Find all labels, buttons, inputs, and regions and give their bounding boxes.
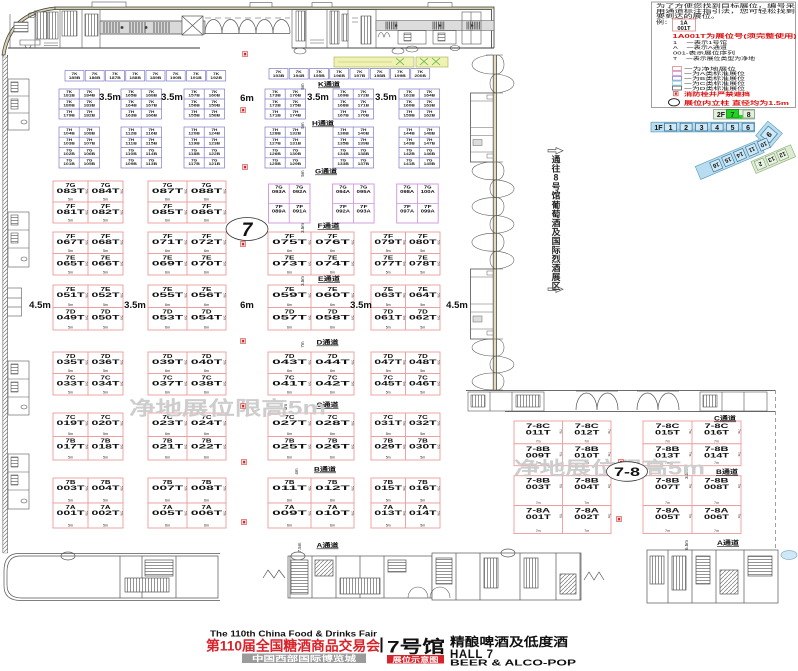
svg-text:7m: 7m (607, 452, 611, 457)
svg-text:5m: 5m (223, 240, 227, 245)
svg-text:016T: 016T (409, 486, 437, 492)
svg-text:5m: 5m (184, 316, 188, 321)
svg-text:128B: 128B (269, 131, 281, 135)
svg-text:5m: 5m (437, 445, 441, 450)
svg-text:7m: 7m (536, 439, 541, 443)
svg-text:7m: 7m (536, 529, 541, 533)
svg-text:A 一表示A通道: A 一表示A通道 (673, 44, 727, 51)
svg-text:013T: 013T (374, 511, 402, 517)
svg-text:5m: 5m (351, 421, 355, 426)
svg-text:072T: 072T (191, 240, 223, 246)
svg-text:H通道: H通道 (312, 120, 334, 128)
svg-text:5m: 5m (420, 249, 425, 253)
svg-text:015T: 015T (374, 486, 402, 492)
svg-text:6m: 6m (165, 219, 170, 223)
svg-text:170B: 170B (358, 113, 370, 117)
svg-text:5m: 5m (120, 382, 124, 387)
svg-text:5m: 5m (437, 293, 441, 298)
svg-text:5m: 5m (351, 486, 355, 491)
svg-text:5m: 5m (120, 360, 124, 365)
svg-text:6m: 6m (165, 271, 170, 275)
svg-text:6m: 6m (240, 93, 254, 104)
svg-text:F通道: F通道 (318, 222, 340, 230)
svg-text:5m: 5m (437, 382, 441, 387)
svg-text:5m: 5m (223, 360, 227, 365)
svg-text:042T: 042T (315, 382, 350, 388)
svg-text:004T: 004T (574, 484, 599, 491)
svg-text:010T: 010T (315, 511, 350, 517)
svg-text:5m: 5m (437, 262, 441, 267)
svg-text:6m: 6m (330, 499, 335, 503)
svg-text:174B: 174B (290, 113, 302, 117)
svg-text:5m: 5m (386, 391, 391, 395)
svg-text:048T: 048T (409, 360, 437, 366)
svg-text:5m: 5m (103, 219, 108, 223)
svg-text:5m: 5m (184, 240, 188, 245)
svg-text:107B: 107B (84, 142, 96, 146)
svg-text:5m: 5m (223, 445, 227, 450)
svg-text:5m: 5m (85, 421, 89, 426)
svg-text:5m: 5m (351, 316, 355, 321)
svg-text:131B: 131B (290, 142, 302, 146)
svg-text:5m: 5m (386, 303, 391, 307)
svg-text:006T: 006T (191, 511, 223, 517)
svg-text:5m: 5m (68, 303, 73, 307)
svg-text:6m: 6m (204, 369, 209, 373)
svg-text:088T: 088T (191, 189, 223, 195)
svg-text:5m: 5m (184, 262, 188, 267)
svg-text:125B: 125B (269, 162, 281, 166)
svg-text:5m: 5m (103, 271, 108, 275)
svg-text:168B: 168B (146, 93, 158, 97)
svg-text:100A: 100A (421, 189, 435, 194)
svg-text:5m: 5m (223, 189, 227, 194)
svg-text:186B: 186B (89, 76, 101, 80)
svg-text:089A: 089A (272, 209, 286, 214)
svg-text:073T: 073T (272, 262, 307, 268)
svg-text:5m: 5m (386, 271, 391, 275)
svg-text:6m: 6m (330, 456, 335, 460)
svg-text:6m: 6m (204, 499, 209, 503)
svg-text:5m: 5m (308, 445, 312, 450)
svg-text:054T: 054T (191, 316, 223, 322)
svg-text:6m: 6m (204, 432, 209, 436)
svg-text:5m: 5m (402, 445, 406, 450)
svg-text:5m: 5m (420, 432, 425, 436)
svg-text:119B: 119B (188, 142, 200, 146)
svg-text:050T: 050T (92, 316, 121, 322)
svg-text:5m: 5m (120, 240, 124, 245)
svg-text:064T: 064T (409, 293, 437, 299)
svg-text:014T: 014T (409, 511, 437, 517)
svg-text:185B: 185B (69, 76, 81, 80)
svg-text:例：: 例： (656, 18, 672, 26)
svg-text:109B: 109B (125, 162, 137, 166)
svg-text:5m: 5m (85, 262, 89, 267)
svg-text:5m: 5m (120, 293, 124, 298)
svg-text:188B: 188B (129, 76, 141, 80)
svg-text:008T: 008T (191, 486, 223, 492)
svg-text:5m: 5m (402, 316, 406, 321)
svg-text:5m: 5m (420, 303, 425, 307)
svg-text:087T: 087T (152, 189, 184, 195)
svg-text:189B: 189B (150, 76, 162, 80)
svg-text:4.5m: 4.5m (29, 300, 51, 311)
svg-text:105B: 105B (84, 162, 96, 166)
svg-text:130B: 130B (290, 152, 302, 156)
svg-text:025T: 025T (272, 445, 307, 451)
svg-text:5m: 5m (68, 219, 73, 223)
svg-text:7.5m: 7.5m (297, 542, 302, 552)
svg-text:193B: 193B (273, 74, 285, 78)
svg-text:040T: 040T (191, 360, 223, 366)
svg-text:164B: 164B (424, 93, 436, 97)
svg-text:5m: 5m (386, 432, 391, 436)
svg-text:063T: 063T (374, 293, 402, 299)
svg-text:第110届全国糖酒商品交易会: 第110届全国糖酒商品交易会 (206, 638, 381, 654)
svg-text:7m: 7m (688, 514, 692, 519)
svg-text:196B: 196B (333, 74, 345, 78)
svg-text:045T: 045T (374, 382, 402, 388)
svg-text:012T: 012T (315, 486, 350, 492)
svg-text:7m: 7m (714, 501, 719, 505)
svg-text:180B: 180B (63, 103, 75, 107)
svg-text:5m: 5m (386, 456, 391, 460)
svg-text:191B: 191B (190, 76, 202, 80)
svg-text:6m: 6m (287, 391, 292, 395)
svg-text:080T: 080T (409, 240, 437, 246)
svg-text:135B: 135B (337, 142, 349, 146)
svg-text:028T: 028T (315, 421, 350, 427)
svg-text:5m: 5m (85, 316, 89, 321)
svg-text:074T: 074T (315, 262, 350, 268)
svg-text:047T: 047T (374, 360, 402, 366)
svg-text:5m: 5m (223, 262, 227, 267)
svg-text:012T: 012T (574, 430, 599, 437)
svg-text:165B: 165B (125, 93, 137, 97)
svg-text:015T: 015T (655, 430, 680, 437)
svg-text:D通道: D通道 (317, 339, 339, 347)
svg-text:009T: 009T (272, 511, 307, 517)
svg-text:034T: 034T (92, 382, 121, 388)
svg-text:5m: 5m (437, 486, 441, 491)
svg-text:5m: 5m (351, 445, 355, 450)
svg-text:5m: 5m (103, 456, 108, 460)
svg-text:116B: 116B (146, 131, 158, 135)
svg-text:101B: 101B (63, 162, 75, 166)
svg-text:5m: 5m (85, 360, 89, 365)
svg-text:5m: 5m (420, 369, 425, 373)
svg-text:6m: 6m (330, 271, 335, 275)
svg-text:007T: 007T (655, 484, 680, 491)
svg-text:001T: 001T (677, 26, 691, 32)
svg-text:003T: 003T (57, 486, 86, 492)
svg-text:017T: 017T (57, 445, 86, 451)
svg-text:061T: 061T (374, 316, 402, 322)
svg-text:082T: 082T (92, 210, 121, 216)
svg-text:023T: 023T (152, 421, 184, 427)
svg-text:187B: 187B (109, 76, 121, 80)
svg-text:6m: 6m (165, 456, 170, 460)
svg-text:5m: 5m (68, 524, 73, 528)
svg-text:052T: 052T (92, 293, 121, 299)
svg-text:6m: 6m (240, 300, 254, 311)
svg-text:168B: 168B (337, 103, 349, 107)
svg-text:060T: 060T (315, 293, 350, 299)
svg-text:7m: 7m (607, 484, 611, 489)
svg-text:098A: 098A (400, 189, 414, 194)
svg-text:049T: 049T (57, 316, 86, 322)
svg-text:7m: 7m (536, 501, 541, 505)
svg-text:6m: 6m (287, 369, 292, 373)
svg-text:3.5m: 3.5m (99, 92, 121, 103)
svg-text:6m: 6m (165, 303, 170, 307)
svg-text:021T: 021T (152, 445, 184, 451)
svg-text:114B: 114B (146, 152, 158, 156)
svg-text:075T: 075T (272, 240, 307, 246)
svg-text:5m: 5m (437, 316, 441, 321)
svg-text:003T: 003T (526, 484, 551, 491)
svg-text:6m: 6m (165, 524, 170, 528)
svg-text:001T: 001T (57, 511, 86, 517)
svg-text:011T: 011T (272, 486, 307, 492)
svg-text:6m: 6m (204, 249, 209, 253)
svg-text:5m: 5m (103, 499, 108, 503)
svg-text:6m: 6m (204, 456, 209, 460)
svg-text:5m: 5m (308, 240, 312, 245)
svg-text:136B: 136B (337, 131, 349, 135)
svg-text:118B: 118B (188, 152, 200, 156)
svg-text:084T: 084T (92, 189, 121, 195)
svg-text:183B: 183B (84, 103, 96, 107)
svg-text:5m: 5m (308, 262, 312, 267)
svg-text:176B: 176B (290, 93, 302, 97)
svg-text:126B: 126B (269, 152, 281, 156)
svg-text:001T: 001T (526, 514, 551, 521)
svg-text:169B: 169B (337, 93, 349, 97)
svg-text:024T: 024T (191, 421, 223, 427)
svg-text:5m: 5m (402, 511, 406, 516)
svg-text:199B: 199B (394, 74, 406, 78)
svg-text:6m: 6m (287, 271, 292, 275)
svg-text:3.5m: 3.5m (161, 92, 183, 103)
svg-text:156B: 156B (188, 103, 200, 107)
svg-text:中国西部国际博览城: 中国西部国际博览城 (252, 653, 357, 663)
svg-text:142B: 142B (403, 152, 415, 156)
svg-text:112B: 112B (125, 131, 137, 135)
svg-text:5m: 5m (402, 360, 406, 365)
svg-text:085T: 085T (152, 210, 184, 216)
svg-text:6m: 6m (204, 391, 209, 395)
svg-text:022T: 022T (191, 445, 223, 451)
svg-text:G通道: G通道 (315, 168, 337, 176)
svg-text:6m: 6m (330, 326, 335, 330)
svg-text:094A: 094A (336, 189, 350, 194)
svg-text:3.5m: 3.5m (300, 276, 305, 286)
svg-text:5m: 5m (120, 316, 124, 321)
svg-text:A通道: A通道 (717, 539, 739, 547)
svg-text:3.5m: 3.5m (307, 92, 329, 103)
svg-text:057T: 057T (272, 316, 307, 322)
svg-text:5m: 5m (223, 486, 227, 491)
svg-text:108B: 108B (84, 131, 96, 135)
svg-text:7-8: 7-8 (614, 465, 640, 479)
svg-text:016T: 016T (704, 430, 729, 437)
svg-text:147B: 147B (424, 142, 436, 146)
svg-text:044T: 044T (315, 360, 350, 366)
svg-text:5m: 5m (308, 316, 312, 321)
svg-text:026T: 026T (315, 445, 350, 451)
svg-text:195B: 195B (313, 74, 325, 78)
svg-text:4m: 4m (294, 468, 299, 474)
svg-text:5m: 5m (184, 210, 188, 215)
svg-text:6m: 6m (204, 303, 209, 307)
svg-text:5m: 5m (351, 262, 355, 267)
svg-text:7m: 7m (584, 529, 589, 533)
svg-text:5m: 5m (351, 511, 355, 516)
svg-text:127B: 127B (269, 142, 281, 146)
svg-text:122B: 122B (209, 152, 221, 156)
svg-text:079T: 079T (374, 240, 402, 246)
svg-text:T 一表示展位类型为净地: T 一表示展位类型为净地 (673, 55, 755, 62)
svg-text:6m: 6m (165, 432, 170, 436)
svg-text:144B: 144B (403, 131, 415, 135)
svg-text:5m: 5m (103, 249, 108, 253)
svg-text:5m: 5m (420, 326, 425, 330)
svg-text:104B: 104B (63, 131, 75, 135)
svg-text:5m: 5m (103, 326, 108, 330)
svg-text:5m: 5m (308, 382, 312, 387)
svg-text:5m: 5m (68, 369, 73, 373)
svg-text:146B: 146B (424, 152, 436, 156)
svg-text:6m: 6m (165, 326, 170, 330)
svg-text:6m: 6m (330, 303, 335, 307)
svg-text:031T: 031T (374, 421, 402, 427)
svg-text:078T: 078T (409, 262, 437, 268)
svg-text:6m: 6m (287, 326, 292, 330)
svg-text:精酿啤酒及低度酒: 精酿啤酒及低度酒 (450, 634, 568, 649)
svg-text:7m: 7m (665, 529, 670, 533)
svg-text:5m: 5m (85, 240, 89, 245)
svg-text:002T: 002T (92, 511, 121, 517)
svg-text:111B: 111B (125, 142, 137, 146)
svg-text:6m: 6m (204, 326, 209, 330)
svg-text:5m: 5m (386, 499, 391, 503)
svg-text:7m: 7m (584, 501, 589, 505)
svg-text:6m: 6m (330, 432, 335, 436)
svg-text:5m: 5m (402, 382, 406, 387)
svg-text:029T: 029T (374, 445, 402, 451)
svg-text:7m: 7m (714, 461, 719, 465)
svg-text:092A: 092A (293, 189, 307, 194)
svg-text:039T: 039T (152, 360, 184, 366)
svg-text:155B: 155B (188, 113, 200, 117)
svg-text:5m: 5m (437, 421, 441, 426)
svg-text:157B: 157B (188, 93, 200, 97)
svg-text:5m: 5m (437, 511, 441, 516)
svg-text:3.5m: 3.5m (350, 300, 372, 311)
svg-text:5m: 5m (437, 240, 441, 245)
svg-text:5m: 5m (184, 486, 188, 491)
svg-text:5m: 5m (308, 360, 312, 365)
svg-text:8: 8 (747, 112, 751, 119)
svg-text:5m: 5m (184, 189, 188, 194)
svg-text:BEER & ALCO-POP: BEER & ALCO-POP (450, 658, 577, 667)
svg-text:5m: 5m (402, 262, 406, 267)
svg-text:5m: 5m (308, 293, 312, 298)
svg-text:5m: 5m (85, 511, 89, 516)
svg-text:2: 2 (684, 125, 688, 132)
svg-text:6m: 6m (165, 369, 170, 373)
svg-text:103B: 103B (63, 142, 75, 146)
svg-text:148B: 148B (424, 131, 436, 135)
svg-text:070T: 070T (191, 262, 223, 268)
svg-text:6m: 6m (204, 198, 209, 202)
svg-text:069T: 069T (152, 262, 184, 268)
svg-text:5m: 5m (85, 445, 89, 450)
svg-text:7m: 7m (665, 501, 670, 505)
svg-text:077T: 077T (374, 262, 402, 268)
svg-text:K通道: K通道 (318, 81, 340, 89)
svg-text:7m: 7m (714, 439, 719, 443)
svg-text:5m: 5m (223, 421, 227, 426)
svg-text:5m: 5m (308, 486, 312, 491)
svg-text:展位示意图: 展位示意图 (393, 655, 439, 664)
svg-text:068T: 068T (92, 240, 121, 246)
svg-text:3.5m: 3.5m (300, 223, 305, 233)
svg-text:5m: 5m (85, 293, 89, 298)
svg-text:5m: 5m (120, 486, 124, 491)
svg-text:7m: 7m (559, 452, 563, 457)
svg-text:7m: 7m (559, 514, 563, 519)
svg-text:5m: 5m (386, 249, 391, 253)
svg-text:5m: 5m (85, 210, 89, 215)
svg-text:141B: 141B (403, 162, 415, 166)
svg-text:167B: 167B (146, 103, 158, 107)
svg-text:113B: 113B (146, 162, 158, 166)
svg-text:056T: 056T (191, 293, 223, 299)
svg-text:6m: 6m (330, 249, 335, 253)
svg-text:095A: 095A (357, 189, 371, 194)
svg-text:5m: 5m (120, 210, 124, 215)
svg-text:6m: 6m (165, 391, 170, 395)
svg-text:7: 7 (242, 220, 254, 241)
svg-text:123B: 123B (209, 142, 221, 146)
svg-text:6m: 6m (330, 524, 335, 528)
svg-text:1 一表示1号馆: 1 一表示1号馆 (673, 39, 727, 46)
svg-text:001-表示展位序列: 001-表示展位序列 (673, 50, 735, 57)
svg-text:5m: 5m (120, 189, 124, 194)
svg-text:137B: 137B (358, 162, 370, 166)
svg-text:5m: 5m (223, 382, 227, 387)
svg-text:160B: 160B (403, 103, 415, 107)
svg-text:007T: 007T (152, 486, 184, 492)
svg-text:014T: 014T (704, 452, 729, 459)
svg-text:6m: 6m (204, 219, 209, 223)
svg-text:7m: 7m (737, 484, 741, 489)
svg-text:5m: 5m (120, 421, 124, 426)
svg-text:5m: 5m (402, 293, 406, 298)
svg-text:091A: 091A (293, 209, 307, 214)
svg-text:消防栓井严禁遮挡: 消防栓井严禁遮挡 (684, 90, 750, 98)
svg-text:006T: 006T (704, 514, 729, 521)
svg-text:4: 4 (715, 125, 719, 132)
svg-text:6m: 6m (204, 271, 209, 275)
svg-text:5m: 5m (68, 432, 73, 436)
svg-text:134B: 134B (337, 152, 349, 156)
svg-text:198B: 198B (374, 74, 386, 78)
svg-text:182B: 182B (84, 113, 96, 117)
